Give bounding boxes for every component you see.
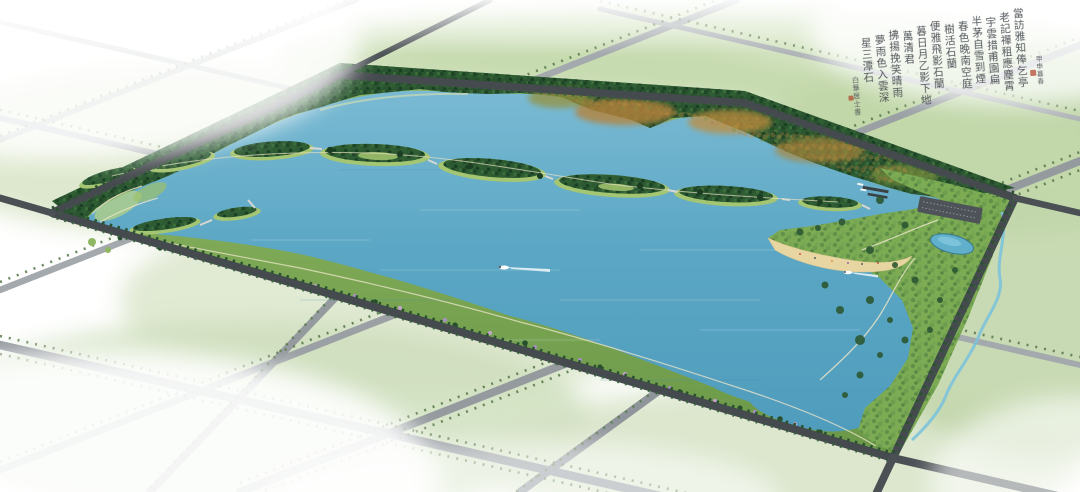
aerial-rendering: 甲申暮春 當訪雅知俸乞亭 老記禪租應塵霄 宇雲措甫園扁 半茅自雪到煙 春色晚南空… bbox=[0, 0, 1080, 492]
masterplan-scene bbox=[0, 0, 1080, 492]
